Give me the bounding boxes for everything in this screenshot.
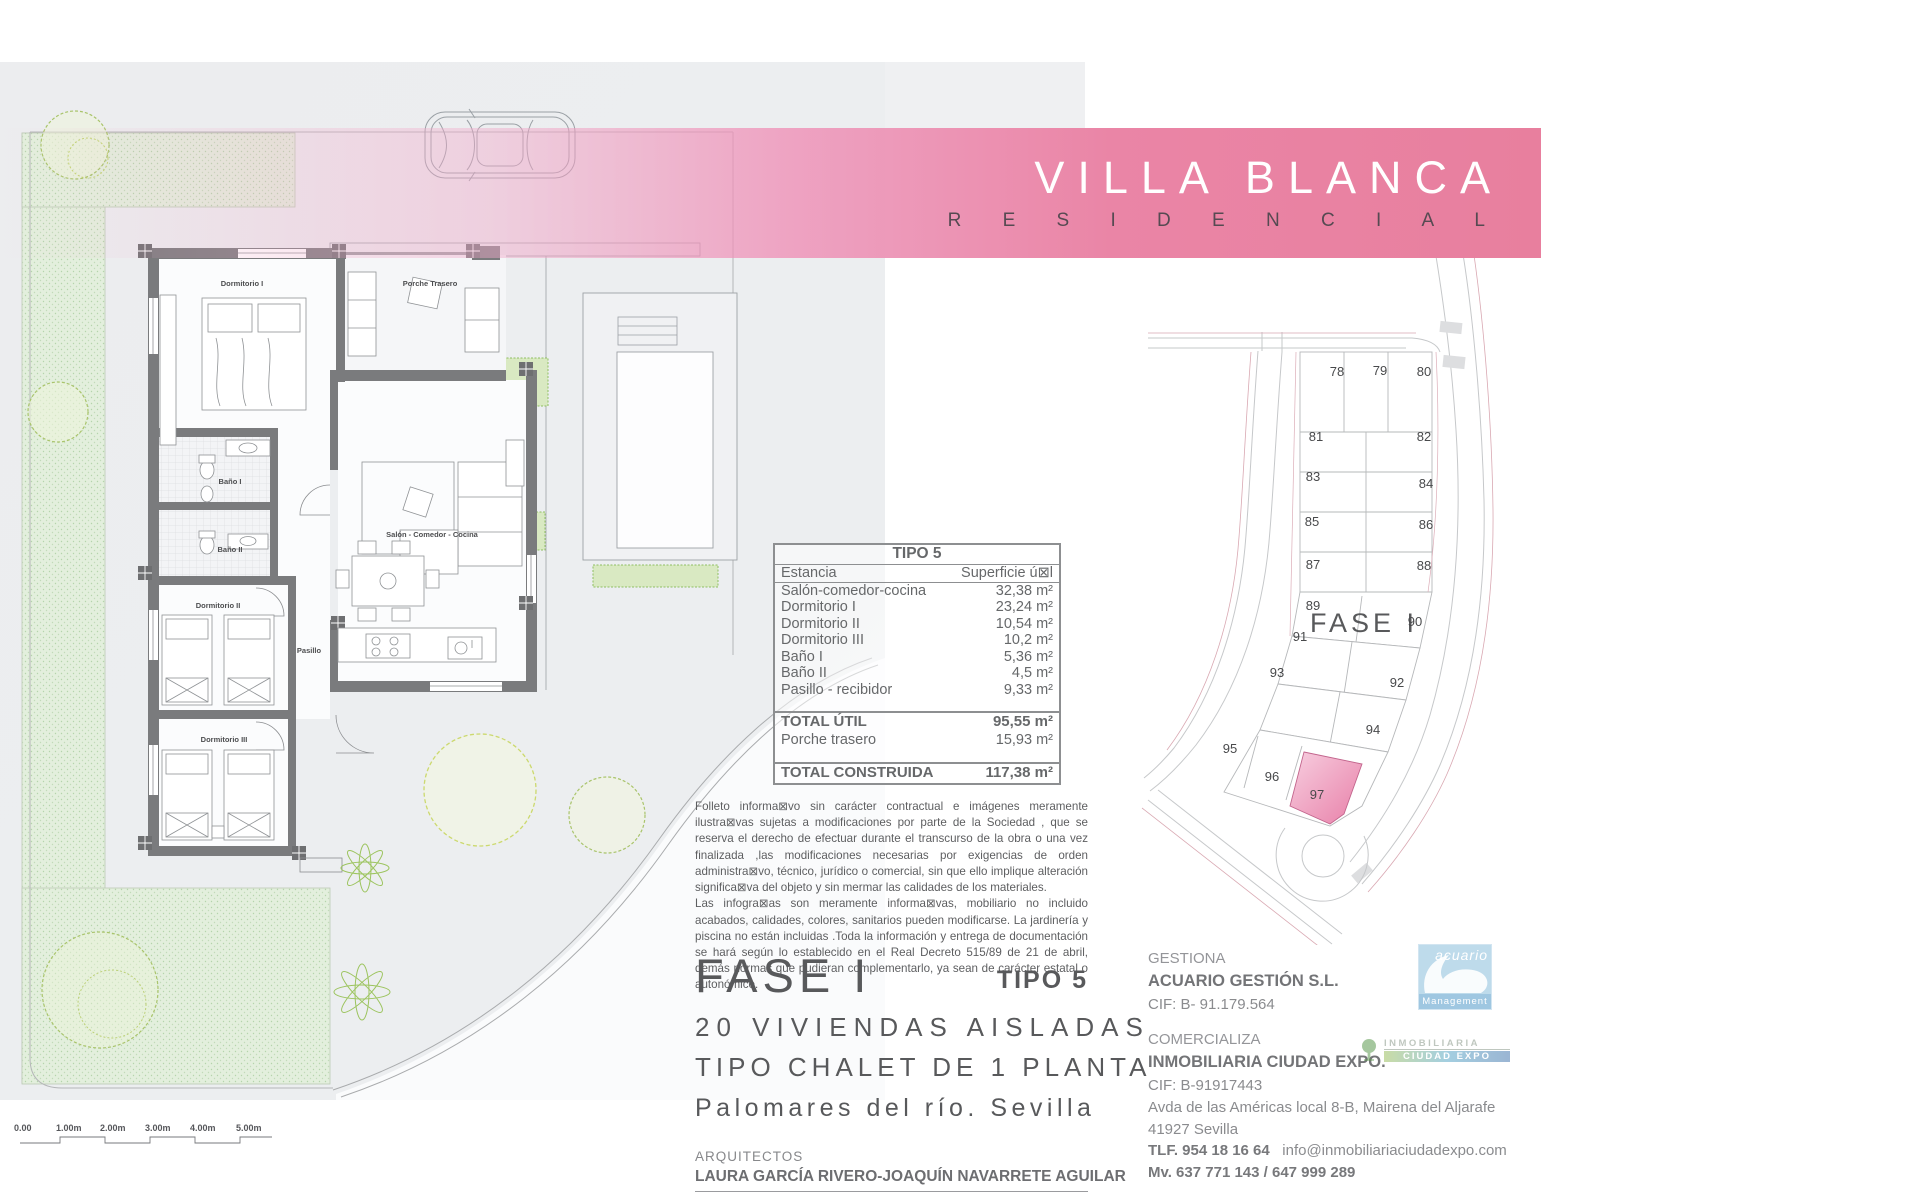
table-total-construida-row: TOTAL CONSTRUIDA 117,38 m² [775, 763, 1059, 783]
plot-81: 81 [1309, 429, 1323, 444]
plot-97: 97 [1310, 787, 1324, 802]
plot-78: 78 [1330, 364, 1344, 379]
gestiona-label: GESTIONA [1148, 948, 1568, 970]
banner-title: VILLA BLANCA [1034, 154, 1503, 201]
table-row: Salón-comedor-cocina32,38 m² [775, 582, 1059, 599]
table-row: Baño I5,36 m² [775, 649, 1059, 666]
room-label-dormitorio1: Dormitorio I [221, 279, 264, 288]
plot-85: 85 [1305, 514, 1319, 529]
area-table: TIPO 5 Estancia Superficie ú⊠l Salón-com… [773, 543, 1061, 785]
mobile: Mv. 637 771 143 / 647 999 289 [1148, 1162, 1568, 1184]
project-line1: 20 VIVIENDAS AISLADAS [695, 1012, 1088, 1043]
room-label-banio2: Baño II [217, 545, 242, 554]
plot-86: 86 [1419, 517, 1433, 532]
plot-91: 91 [1293, 629, 1307, 644]
project-block: FASE I TIPO 5 20 VIVIENDAS AISLADAS TIPO… [695, 952, 1088, 1192]
room-label-dormitorio2: Dormitorio II [196, 601, 241, 610]
pool [583, 293, 737, 560]
project-line3: Palomares del río. Sevilla [695, 1094, 1088, 1123]
table-row: Pasillo - recibidor9,33 m² [775, 682, 1059, 699]
plot-82: 82 [1417, 429, 1431, 444]
room-label-dormitorio3: Dormitorio III [201, 735, 248, 744]
contacts-block: GESTIONA ACUARIO GESTIÓN S.L. CIF: B- 91… [1148, 948, 1568, 1184]
banner-subtitle: R E S I D E N C I A L [948, 210, 1503, 232]
plot-93: 93 [1270, 665, 1284, 680]
scale-0: 0.00 [14, 1123, 32, 1133]
inmobiliaria-ciudad-expo-logo: INMOBILIARIA CIUDAD EXPO [1360, 1036, 1510, 1064]
table-row: Baño II4,5 m² [775, 665, 1059, 682]
gestiona-name: ACUARIO GESTIÓN S.L. [1148, 970, 1568, 994]
project-tipo: TIPO 5 [997, 966, 1088, 999]
room-label-banio1: Baño I [219, 477, 242, 486]
email: info@inmobiliariaciudadexpo.com [1282, 1142, 1507, 1159]
room-label-pasillo: Pasillo [297, 646, 322, 655]
roundabout [1276, 828, 1368, 901]
scale-3: 3.00m [145, 1123, 171, 1133]
siteplan-fase-label: FASE I [1310, 608, 1418, 638]
plot-95: 95 [1223, 741, 1237, 756]
site-plan-drawing: FASE I 78 79 80 81 82 83 84 85 86 87 88 … [1130, 245, 1570, 945]
table-row: Dormitorio I23,24 m² [775, 599, 1059, 616]
plot-79: 79 [1373, 363, 1387, 378]
plot-80: 80 [1417, 364, 1431, 379]
tree-icon [1360, 1038, 1378, 1062]
acuario-logo-text: acuario [1435, 947, 1488, 963]
scale-2: 2.00m [100, 1123, 126, 1133]
plots [1224, 352, 1432, 826]
scale-4: 4.00m [190, 1123, 216, 1133]
plot-84: 84 [1419, 476, 1433, 491]
table-col-area: Superficie ú⊠l [949, 565, 1059, 583]
table-row: Dormitorio II10,54 m² [775, 616, 1059, 633]
table-title: TIPO 5 [775, 545, 1059, 565]
scale-bar: 0.00 1.00m 2.00m 3.00m 4.00m 5.00m [14, 1123, 272, 1143]
plot-96: 96 [1265, 769, 1279, 784]
room-label-salon: Salón - Comedor - Cocina [386, 530, 479, 539]
architects-label: ARQUITECTOS [695, 1149, 1088, 1164]
inmo-logo-line1: INMOBILIARIA [1384, 1038, 1510, 1050]
table-total-util-row: TOTAL ÚTIL 95,55 m² [775, 712, 1059, 732]
address-line1: Avda de las Américas local 8-B, Mairena … [1148, 1097, 1568, 1119]
address-line2: 41927 Sevilla [1148, 1119, 1568, 1141]
disclaimer-paragraph-1: Folleto informa⊠vo sin carácter contract… [695, 799, 1088, 896]
plot-88: 88 [1417, 558, 1431, 573]
inmo-logo-line2: CIUDAD EXPO [1384, 1051, 1510, 1062]
scale-5: 5.00m [236, 1123, 262, 1133]
table-col-room: Estancia [775, 565, 949, 583]
plot-90: 90 [1408, 614, 1422, 629]
comercializa-cif: CIF: B-91917443 [1148, 1075, 1568, 1097]
phone: TLF. 954 18 16 64 [1148, 1142, 1270, 1159]
table-row: Dormitorio III10,2 m² [775, 632, 1059, 649]
scale-1: 1.00m [56, 1123, 82, 1133]
plot-92: 92 [1390, 675, 1404, 690]
acuario-logo-sub: Management [1419, 994, 1491, 1009]
gestiona-cif: CIF: B- 91.179.564 [1148, 994, 1568, 1016]
project-line2: TIPO CHALET DE 1 PLANTA [695, 1052, 1088, 1083]
plot-87: 87 [1306, 557, 1320, 572]
plot-83: 83 [1306, 469, 1320, 484]
table-row: Porche trasero15,93 m² [775, 732, 1059, 749]
site-plan-panel: FASE I 78 79 80 81 82 83 84 85 86 87 88 … [1130, 245, 1570, 945]
plot-94: 94 [1366, 722, 1380, 737]
architects-names: LAURA GARCÍA RIVERO-JOAQUÍN NAVARRETE AG… [695, 1168, 1088, 1192]
project-fase: FASE I [695, 952, 871, 999]
room-label-porche: Porche Trasero [403, 279, 458, 288]
acuario-management-logo: acuario Management [1418, 944, 1492, 1010]
banner: VILLA BLANCA R E S I D E N C I A L [0, 128, 1541, 258]
plot-89: 89 [1306, 598, 1320, 613]
